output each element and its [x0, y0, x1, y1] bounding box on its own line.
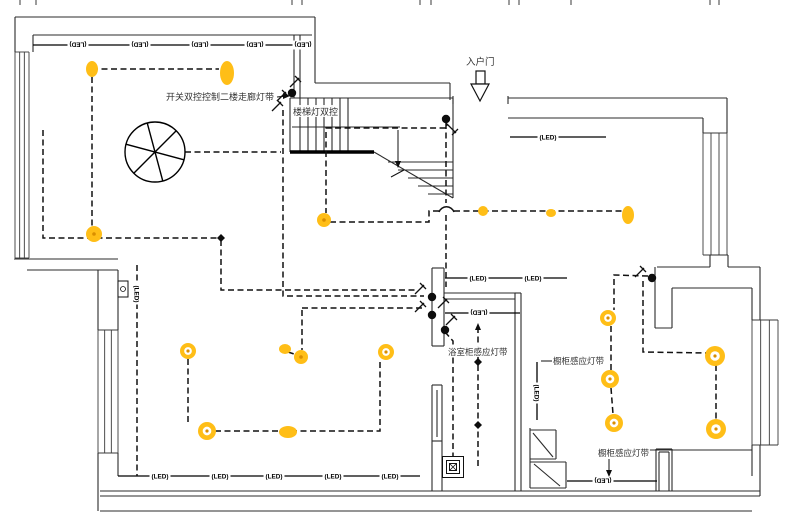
- wire-dashed: [43, 130, 218, 238]
- wall-switch-fixture: [118, 281, 128, 297]
- junction-dot: [441, 326, 449, 334]
- wall-line: [534, 464, 560, 486]
- led-marker: (LED): [68, 41, 89, 50]
- wire-node-diamond: [474, 421, 482, 429]
- ceiling-fan-icon: [125, 122, 185, 182]
- switch-icon: [290, 76, 301, 87]
- wire-dashed: [221, 240, 418, 290]
- led-marker-text: (LED): [381, 473, 398, 480]
- wire-node-diamond: [474, 358, 482, 366]
- ring-light: [601, 370, 619, 388]
- blob-light: [546, 209, 556, 217]
- led-marker-text: (LED): [294, 41, 311, 48]
- wall-line: [533, 433, 553, 457]
- led-marker-text: (LED): [131, 41, 148, 48]
- annotation-cabinet-sensor-note-1: 橱柜感应灯带: [553, 356, 605, 366]
- annotation-stair-light-note: 楼梯灯双控: [292, 105, 339, 117]
- ring-light: [180, 343, 196, 359]
- lighting-plan-drawing: (LED)(LED)(LED)(LED)(LED)(LED)(LED)(LED)…: [0, 0, 786, 520]
- ring-light: [705, 346, 725, 366]
- led-marker-text: (LED): [594, 477, 611, 484]
- led-marker: (LED): [210, 472, 231, 481]
- led-marker: (LED): [469, 309, 490, 318]
- switch-icon: [415, 283, 426, 294]
- led-marker: (LED): [533, 383, 542, 404]
- spot-light: [294, 350, 308, 364]
- led-marker-text: (LED): [69, 41, 86, 48]
- wire-dashed: [611, 388, 613, 414]
- led-marker: (LED): [468, 274, 489, 283]
- window: [703, 133, 727, 255]
- junction-dot: [442, 115, 450, 123]
- led-marker: (LED): [293, 41, 314, 50]
- led-marker: (LED): [264, 472, 285, 481]
- annotation-bath-cabinet-sensor-note: 浴室柜感应灯带: [447, 346, 509, 358]
- led-marker: (LED): [380, 472, 401, 481]
- wire-dashed: [326, 120, 447, 213]
- annotation-entry-door-label: 入户门: [466, 56, 495, 68]
- wire-dashed: [643, 281, 706, 353]
- led-marker-text: (LED): [324, 473, 341, 480]
- led-marker-text: (LED): [539, 134, 556, 141]
- annotation-text: 橱柜感应灯带: [553, 356, 605, 366]
- walls-layer: [14, 17, 760, 511]
- blob-light: [622, 206, 634, 224]
- arrowhead: [606, 470, 612, 477]
- ring-light: [600, 310, 616, 326]
- junction-dot: [428, 311, 436, 319]
- led-marker-text: (LED): [211, 473, 228, 480]
- led-marker-text: (LED): [133, 285, 140, 302]
- blob-light: [220, 61, 234, 85]
- window: [752, 320, 778, 445]
- ring-light: [605, 414, 623, 432]
- switch-icon: [446, 314, 457, 325]
- wire-dashed: [283, 110, 424, 296]
- led-marker-text: (LED): [469, 275, 486, 282]
- switch-icon: [415, 301, 426, 312]
- led-marker-text: (LED): [246, 41, 263, 48]
- wire-hop: [439, 207, 454, 212]
- led-strip-layer: [33, 45, 657, 481]
- spot-light: [86, 226, 102, 242]
- blob-light: [478, 206, 488, 216]
- wire-node-diamond: [217, 234, 225, 242]
- ring-light: [378, 344, 394, 360]
- dimension-ticks: [20, 0, 719, 5]
- annotation-text: 浴室柜感应灯带: [448, 347, 508, 357]
- annotation-text: 入户门: [466, 56, 495, 68]
- junction-dot: [428, 293, 436, 301]
- entry-door-symbol: [471, 71, 489, 101]
- annotation-cabinet-sensor-note-2: 橱柜感应灯带: [597, 447, 650, 459]
- windows-layer: [15, 52, 778, 453]
- leader-line: [391, 170, 404, 177]
- led-marker: (LED): [130, 41, 151, 50]
- led-marker-text: (LED): [470, 309, 487, 316]
- led-marker-text: (LED): [265, 473, 282, 480]
- floor-plan-canvas: (LED)(LED)(LED)(LED)(LED)(LED)(LED)(LED)…: [0, 0, 786, 520]
- recessed-spotlight-icon: [443, 457, 464, 478]
- blob-light: [279, 344, 291, 354]
- arrowhead: [475, 323, 481, 330]
- annotations-layer: 开关双控控制二楼走廊灯带楼梯灯双控入户门浴室柜感应灯带橱柜感应灯带橱柜感应灯带: [166, 56, 650, 458]
- led-marker: (LED): [538, 133, 559, 142]
- wall-line: [374, 152, 453, 198]
- ring-light: [198, 422, 216, 440]
- led-marker-text: (LED): [533, 384, 540, 401]
- junction-dot: [648, 274, 656, 282]
- led-marker-text: (LED): [151, 473, 168, 480]
- window: [15, 52, 29, 258]
- spot-light: [317, 213, 331, 227]
- led-marker: (LED): [523, 274, 544, 283]
- annotation-text: 楼梯灯双控: [293, 106, 338, 117]
- wire-dashed: [215, 359, 380, 431]
- annotation-corridor-switch-note: 开关双控控制二楼走廊灯带: [166, 91, 274, 102]
- window: [98, 330, 118, 453]
- led-marker: (LED): [323, 472, 344, 481]
- annotation-text: 开关双控控制二楼走廊灯带: [166, 91, 274, 102]
- led-marker: (LED): [133, 284, 142, 305]
- annotation-text: 橱柜感应灯带: [598, 448, 650, 458]
- led-marker-text: (LED): [191, 41, 208, 48]
- blob-light: [279, 426, 297, 438]
- led-marker: (LED): [150, 472, 171, 481]
- led-marker-text: (LED): [524, 275, 541, 282]
- ring-light: [706, 419, 726, 439]
- wire-dashed: [330, 211, 439, 222]
- led-marker: (LED): [593, 477, 614, 486]
- blob-light: [86, 61, 98, 77]
- led-marker: (LED): [245, 41, 266, 50]
- led-marker: (LED): [190, 41, 211, 50]
